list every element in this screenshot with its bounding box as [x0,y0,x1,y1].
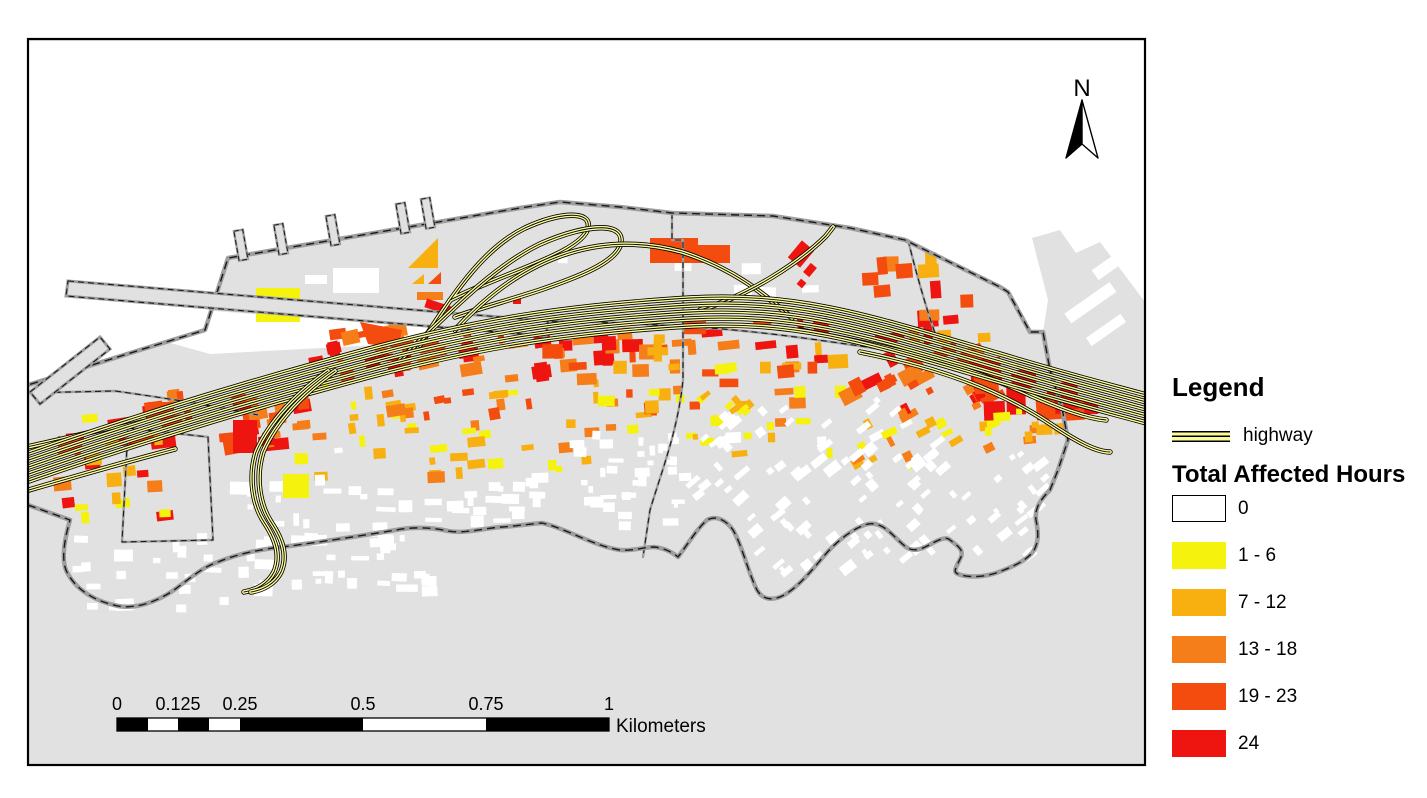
legend-class-row: 7 - 12 [1172,589,1426,616]
legend: Legend highway Total Affected Hours 0 1 … [1168,372,1426,777]
class-swatch-4 [1172,683,1226,710]
legend-title: Legend [1172,372,1426,402]
svg-text:0: 0 [112,694,122,714]
class-label-3: 13 - 18 [1238,640,1297,660]
legend-class-row: 1 - 6 [1172,542,1426,569]
class-label-2: 7 - 12 [1238,593,1287,613]
north-label: N [1073,75,1090,102]
legend-item-highway: highway [1172,428,1426,444]
class-swatch-2 [1172,589,1226,616]
svg-text:0.75: 0.75 [468,694,503,714]
legend-class-row: 24 [1172,730,1426,757]
highway-label: highway [1243,426,1313,446]
svg-text:0.5: 0.5 [350,694,375,714]
legend-class-row: 13 - 18 [1172,636,1426,663]
svg-text:0.125: 0.125 [155,694,200,714]
scale-unit: Kilometers [616,716,706,737]
highway-line-symbol [1172,431,1230,442]
class-label-5: 24 [1238,734,1259,754]
svg-text:0.25: 0.25 [222,694,257,714]
class-swatch-3 [1172,636,1226,663]
class-label-1: 1 - 6 [1238,546,1276,566]
legend-class-row: 19 - 23 [1172,683,1426,710]
class-swatch-1 [1172,542,1226,569]
legend-class-row: 0 [1172,495,1426,522]
map-sheet: N 0 0.125 0.25 0.5 0.75 1 Kilometers Leg… [0,0,1427,798]
legend-section-title: Total Affected Hours [1172,462,1426,488]
svg-text:1: 1 [604,694,614,714]
class-swatch-5 [1172,730,1226,757]
class-label-0: 0 [1238,499,1249,519]
class-swatch-0 [1172,495,1226,522]
class-label-4: 19 - 23 [1238,687,1297,707]
